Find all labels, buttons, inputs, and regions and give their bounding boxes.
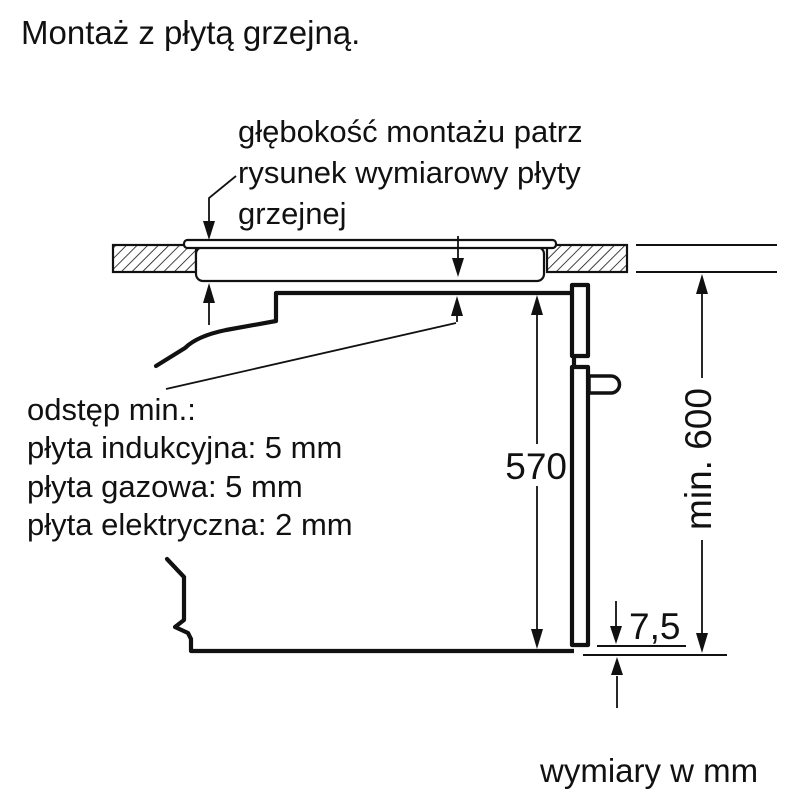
clearance-note: odstęp min.: płyta indukcyjna: 5 mm płyt…	[27, 391, 353, 545]
units-note: wymiary w mm	[540, 752, 758, 791]
installation-diagram-page: Montaż z płytą grzejną. głębokość montaż…	[0, 0, 800, 800]
dimension-570-label: 570	[465, 445, 567, 489]
dimension-min-600-label: min. 600	[677, 388, 721, 530]
oven-door-handle	[589, 376, 620, 393]
installation-depth-leader-arrow	[203, 176, 236, 240]
installation-depth-note: głębokość montażu patrz rysunek wymiarow…	[238, 111, 583, 234]
installation-depth-note-line-2: rysunek wymiarowy płyty	[238, 152, 583, 193]
clearance-note-electric: płyta elektryczna: 2 mm	[27, 506, 353, 544]
oven-control-panel	[572, 285, 588, 356]
hob-body	[196, 247, 544, 281]
worktop-left-section	[113, 245, 196, 272]
clearance-note-heading: odstęp min.:	[27, 391, 353, 429]
page-title: Montaż z płytą grzejną.	[21, 14, 360, 53]
installation-depth-note-line-1: głębokość montażu patrz	[238, 111, 583, 152]
hob-top-panel	[184, 240, 556, 248]
rear-clearance-arrow	[203, 283, 215, 325]
front-clearance-leader-arrow	[166, 296, 463, 389]
installation-depth-note-line-3: grzejnej	[238, 193, 583, 234]
worktop-right-section	[547, 245, 627, 272]
dimension-7-5-label: 7,5	[629, 605, 680, 649]
clearance-note-induction: płyta indukcyjna: 5 mm	[27, 429, 353, 467]
clearance-note-gas: płyta gazowa: 5 mm	[27, 468, 353, 506]
worktop-surface-lines	[636, 245, 777, 272]
oven-door	[572, 367, 588, 645]
